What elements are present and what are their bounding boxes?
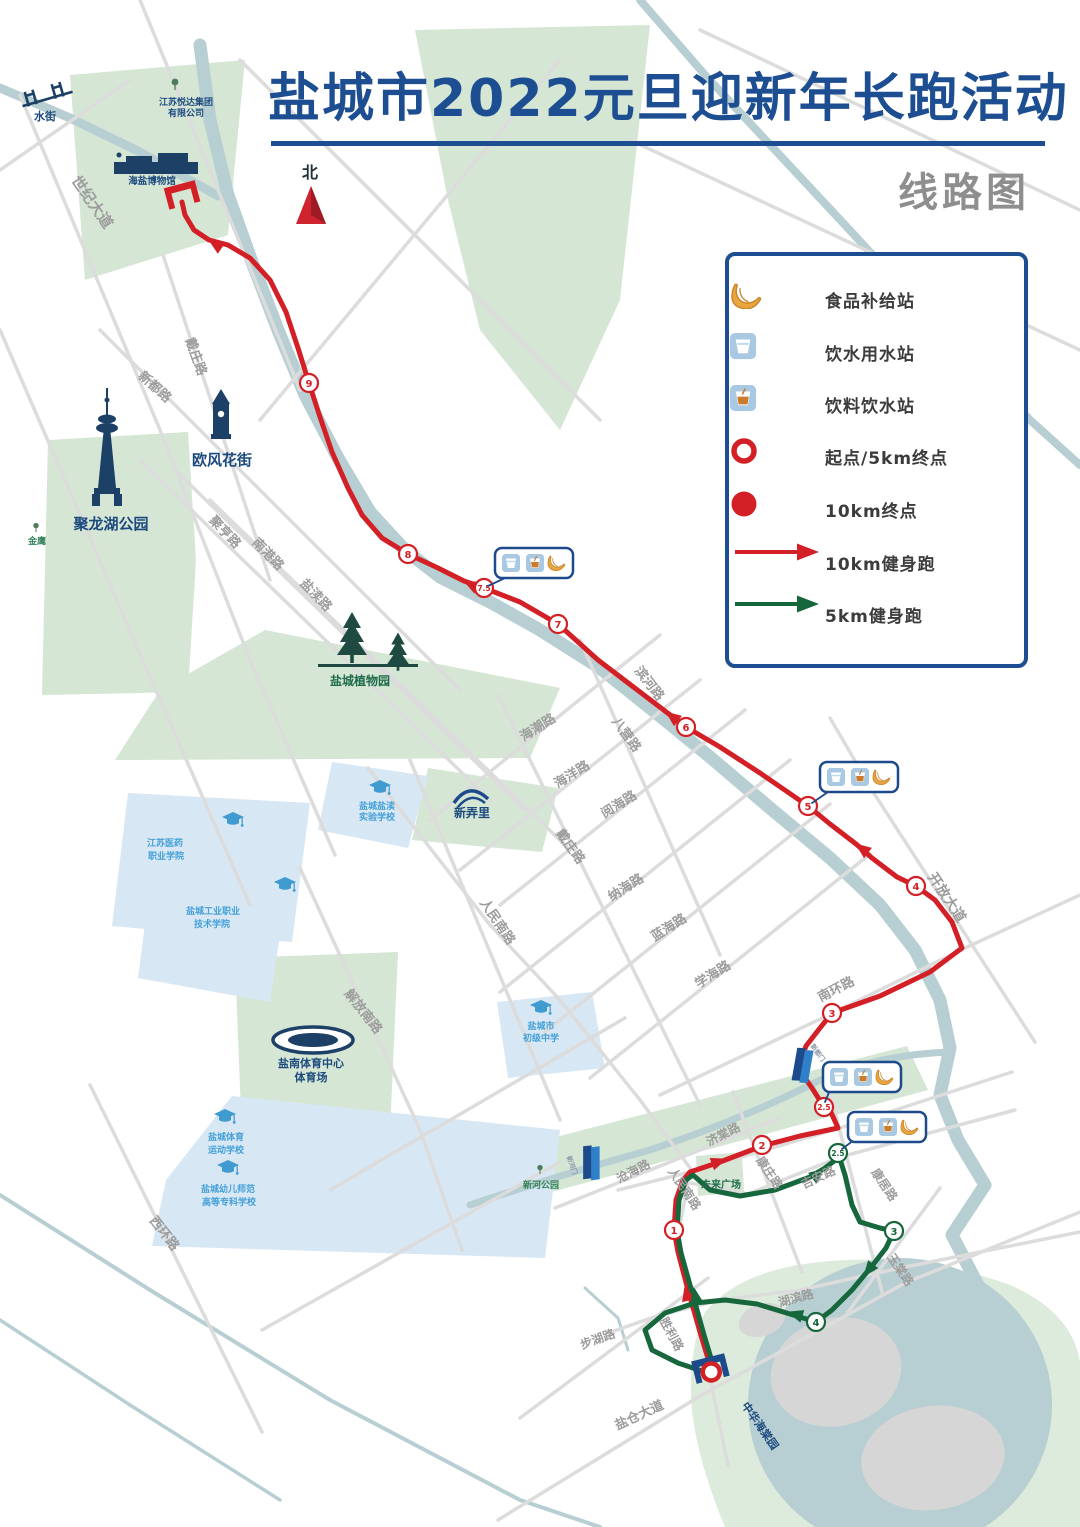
landmark-label: 盐城工业职业 — [186, 905, 240, 917]
page-subtitle: 线路图 — [898, 160, 1048, 218]
svg-text:6: 6 — [683, 723, 690, 734]
legend-row-drink: 饮料饮水站 — [729, 384, 1024, 424]
road-label: 盐仓大道 — [612, 1397, 666, 1433]
landmark-label: 实验学校 — [359, 811, 396, 823]
road-label: 纳海路 — [605, 870, 647, 905]
svg-text:2: 2 — [759, 1141, 766, 1152]
supply-station — [495, 548, 573, 578]
road-label: 南环路 — [815, 973, 858, 1005]
km-marker: 6 — [677, 718, 695, 736]
landmark-label: 未来广场 — [700, 1178, 741, 1191]
landmark-label: 江苏医药 — [147, 837, 183, 849]
park-julonghu — [42, 432, 196, 695]
landmark-label: 新河公园 — [523, 1179, 559, 1191]
school-area-tiyu — [152, 1096, 560, 1258]
km-marker: 2 — [753, 1136, 771, 1154]
svg-text:4: 4 — [813, 1318, 820, 1329]
route-map-poster: 1 2 2.5 3 4 5 6 7 7.5 8 9 2.5 3 4 — [0, 0, 1080, 1527]
km-marker: 3 — [885, 1222, 903, 1240]
landmark-label: 盐南体育中心 — [278, 1056, 344, 1070]
stadium-icon — [273, 1027, 353, 1053]
landmark-label: 盐城市 — [527, 1020, 554, 1032]
road-label: 戴庄路 — [552, 826, 588, 868]
landmark-label: 初级中学 — [523, 1032, 559, 1044]
svg-text:3: 3 — [891, 1227, 898, 1238]
landmark-label: 新弄里 — [454, 805, 490, 820]
north-label: 北 — [302, 163, 318, 182]
legend-label: 起点/5km终点 — [825, 444, 948, 469]
legend-label: 食品补给站 — [825, 287, 915, 312]
landmark-label: 职业学院 — [148, 850, 184, 862]
landmark-label: 欧风花街 — [192, 451, 252, 469]
legend-row-finish: 10km终点 — [729, 489, 1024, 529]
creek-southwest-2 — [0, 1320, 280, 1500]
road-label: 胜利路 — [657, 1314, 688, 1354]
svg-text:1: 1 — [671, 1226, 678, 1237]
legend-label: 饮水用水站 — [825, 340, 915, 365]
tree-icon — [33, 523, 38, 532]
km-marker: 5 — [799, 797, 817, 815]
supply-station — [820, 762, 898, 792]
legend-label: 10km终点 — [825, 497, 918, 522]
km-marker: 8 — [399, 545, 417, 563]
svg-text:2.5: 2.5 — [831, 1149, 844, 1158]
landmark-label: 聚龙湖公园 — [72, 515, 148, 533]
title-underline — [271, 141, 1045, 146]
road-label: 海洋路 — [551, 757, 593, 792]
svg-text:4: 4 — [913, 882, 920, 893]
landmark-label: 技术学院 — [194, 918, 230, 930]
road-label: 学海路 — [692, 957, 734, 992]
km-marker: 9 — [300, 374, 318, 392]
road-label: 阅海路 — [598, 787, 640, 822]
road-label: 人民南路 — [476, 896, 519, 949]
map-legend: 食品补给站 饮水用水站 饮料饮水站 起点/5km终点 10km终点 10km健身… — [725, 252, 1028, 668]
legend-row-food: 食品补给站 — [729, 279, 1024, 319]
landmark-label: 盐城植物园 — [330, 673, 390, 688]
km-marker: 4 — [807, 1313, 825, 1331]
landmark-label: 高等专科学校 — [202, 1196, 257, 1208]
legend-row-start: 起点/5km终点 — [729, 436, 1024, 476]
landmark-label: 海盐博物馆 — [128, 175, 176, 187]
road-label: 蓝海路 — [648, 910, 690, 945]
legend-label: 饮料饮水站 — [825, 392, 915, 417]
km-marker: 7.5 — [475, 579, 493, 597]
road-label: 康居路 — [868, 1165, 901, 1204]
landmark-label: 有限公司 — [168, 107, 204, 119]
school-area-gongye — [138, 885, 285, 1002]
km-marker: 3 — [823, 1004, 841, 1022]
svg-text:3: 3 — [829, 1009, 836, 1020]
landmark-label: 体育场 — [295, 1070, 328, 1084]
north-arrow: 北 — [296, 163, 326, 224]
svg-text:5: 5 — [805, 802, 812, 813]
clock-tower-icon — [211, 389, 231, 439]
legend-label: 10km健身跑 — [825, 550, 936, 575]
landmark-label: 金鹰 — [27, 535, 46, 547]
legend-label: 5km健身跑 — [825, 602, 923, 627]
road-label: 戴庄路 — [182, 336, 211, 379]
svg-text:7: 7 — [555, 620, 562, 631]
landmark-label: 盐城盐渎 — [359, 800, 395, 812]
km-marker: 2.5 — [815, 1098, 833, 1116]
km-marker: 7 — [549, 615, 567, 633]
svg-text:8: 8 — [405, 550, 412, 561]
page-title: 盐城市2022元旦迎新年长跑活动 — [268, 56, 1048, 131]
landmark-label: 江苏悦达集团 — [159, 96, 213, 108]
supply-station — [848, 1112, 926, 1142]
km-marker: 4 — [907, 877, 925, 895]
legend-row-5km: 5km健身跑 — [729, 594, 1024, 634]
km-marker: 1 — [665, 1221, 683, 1239]
landmark-label: 盐城体育 — [208, 1131, 244, 1143]
legend-row-10km: 10km健身跑 — [729, 542, 1024, 582]
legend-row-water: 饮水用水站 — [729, 332, 1024, 372]
landmark-label: 水街 — [34, 109, 56, 123]
landmark-label: 运动学校 — [208, 1144, 245, 1156]
svg-text:9: 9 — [306, 379, 313, 390]
svg-text:2.5: 2.5 — [817, 1103, 830, 1112]
supply-station — [823, 1062, 901, 1092]
landmark-label: 盐城幼儿师范 — [201, 1183, 255, 1195]
map-canvas: 1 2 2.5 3 4 5 6 7 7.5 8 9 2.5 3 4 — [0, 0, 1080, 1527]
